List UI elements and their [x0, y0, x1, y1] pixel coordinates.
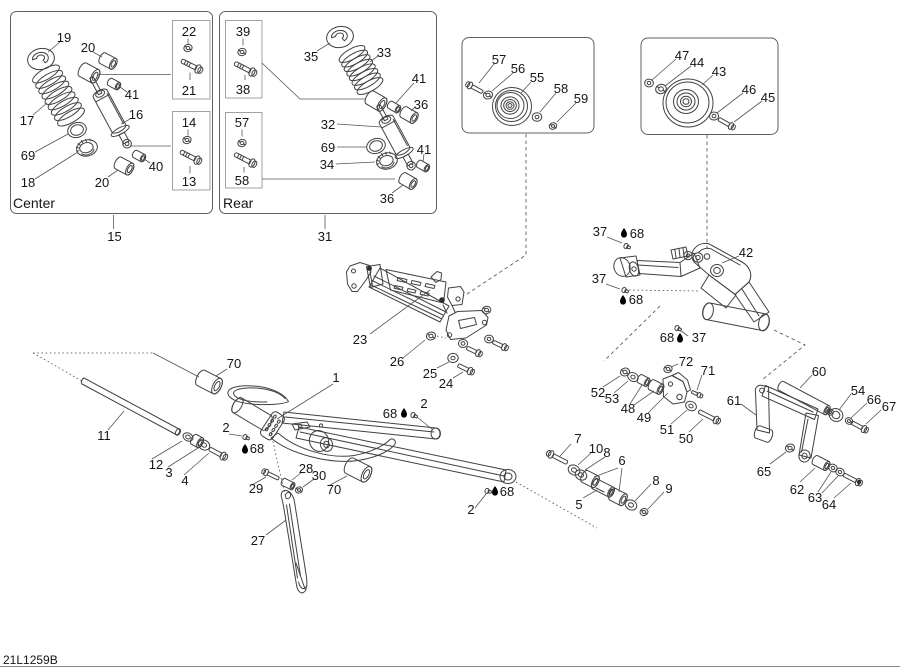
svg-text:9: 9: [665, 481, 672, 496]
svg-text:63: 63: [808, 490, 822, 505]
svg-text:54: 54: [851, 383, 865, 398]
svg-text:8: 8: [652, 473, 659, 488]
svg-text:56: 56: [511, 61, 525, 76]
svg-text:48: 48: [621, 401, 635, 416]
svg-text:64: 64: [822, 497, 836, 512]
svg-text:69: 69: [321, 140, 335, 155]
svg-text:20: 20: [95, 175, 109, 190]
svg-text:22: 22: [182, 24, 196, 39]
svg-text:45: 45: [761, 90, 775, 105]
svg-text:39: 39: [236, 24, 250, 39]
svg-text:6: 6: [618, 453, 625, 468]
svg-text:24: 24: [439, 376, 453, 391]
svg-text:41: 41: [125, 87, 139, 102]
svg-text:68: 68: [250, 441, 264, 456]
svg-text:68: 68: [500, 484, 514, 499]
svg-text:57: 57: [235, 115, 249, 130]
svg-text:40: 40: [149, 159, 163, 174]
svg-text:13: 13: [182, 174, 196, 189]
svg-text:2: 2: [222, 420, 229, 435]
svg-text:41: 41: [417, 142, 431, 157]
svg-text:2: 2: [467, 502, 474, 517]
svg-text:58: 58: [554, 81, 568, 96]
svg-text:59: 59: [574, 91, 588, 106]
svg-text:8: 8: [603, 445, 610, 460]
svg-text:53: 53: [605, 391, 619, 406]
svg-text:25: 25: [423, 366, 437, 381]
svg-text:68: 68: [383, 406, 397, 421]
svg-text:46: 46: [742, 82, 756, 97]
svg-text:52: 52: [591, 385, 605, 400]
svg-text:34: 34: [320, 157, 334, 172]
svg-text:57: 57: [492, 52, 506, 67]
svg-text:68: 68: [660, 330, 674, 345]
svg-text:21L1259B: 21L1259B: [3, 653, 58, 667]
svg-text:30: 30: [312, 468, 326, 483]
svg-text:66: 66: [867, 392, 881, 407]
svg-text:19: 19: [57, 30, 71, 45]
svg-text:68: 68: [630, 226, 644, 241]
svg-text:37: 37: [593, 224, 607, 239]
svg-text:4: 4: [181, 473, 188, 488]
svg-text:18: 18: [21, 175, 35, 190]
svg-text:43: 43: [712, 64, 726, 79]
svg-text:47: 47: [675, 48, 689, 63]
svg-text:70: 70: [227, 356, 241, 371]
svg-text:12: 12: [149, 457, 163, 472]
svg-text:29: 29: [249, 481, 263, 496]
svg-text:72: 72: [679, 354, 693, 369]
svg-text:37: 37: [592, 271, 606, 286]
svg-text:49: 49: [637, 410, 651, 425]
svg-text:61: 61: [727, 393, 741, 408]
svg-text:16: 16: [129, 107, 143, 122]
svg-text:7: 7: [574, 431, 581, 446]
svg-text:60: 60: [812, 364, 826, 379]
svg-text:11: 11: [97, 428, 111, 443]
svg-text:1: 1: [332, 370, 339, 385]
svg-text:Center: Center: [13, 195, 55, 211]
svg-text:Rear: Rear: [223, 195, 254, 211]
svg-text:33: 33: [377, 45, 391, 60]
svg-text:31: 31: [318, 229, 332, 244]
svg-text:14: 14: [182, 115, 196, 130]
svg-text:42: 42: [739, 245, 753, 260]
svg-text:65: 65: [757, 464, 771, 479]
svg-text:2: 2: [420, 396, 427, 411]
svg-text:17: 17: [20, 113, 34, 128]
svg-text:36: 36: [414, 97, 428, 112]
svg-text:37: 37: [692, 330, 706, 345]
svg-text:71: 71: [701, 363, 715, 378]
svg-text:23: 23: [353, 332, 367, 347]
svg-text:62: 62: [790, 482, 804, 497]
svg-text:70: 70: [327, 482, 341, 497]
svg-text:55: 55: [530, 70, 544, 85]
svg-text:10: 10: [589, 441, 603, 456]
svg-text:51: 51: [660, 422, 674, 437]
svg-text:5: 5: [575, 497, 582, 512]
svg-text:3: 3: [165, 465, 172, 480]
svg-text:32: 32: [321, 117, 335, 132]
svg-text:15: 15: [107, 229, 121, 244]
svg-text:26: 26: [390, 354, 404, 369]
svg-text:35: 35: [304, 49, 318, 64]
svg-text:44: 44: [690, 55, 704, 70]
svg-text:41: 41: [412, 71, 426, 86]
svg-text:69: 69: [21, 148, 35, 163]
svg-text:36: 36: [380, 191, 394, 206]
svg-text:21: 21: [182, 83, 196, 98]
svg-text:50: 50: [679, 431, 693, 446]
svg-text:68: 68: [629, 292, 643, 307]
svg-text:27: 27: [251, 533, 265, 548]
svg-text:58: 58: [235, 173, 249, 188]
svg-text:67: 67: [882, 399, 896, 414]
svg-text:38: 38: [236, 82, 250, 97]
svg-text:20: 20: [81, 40, 95, 55]
